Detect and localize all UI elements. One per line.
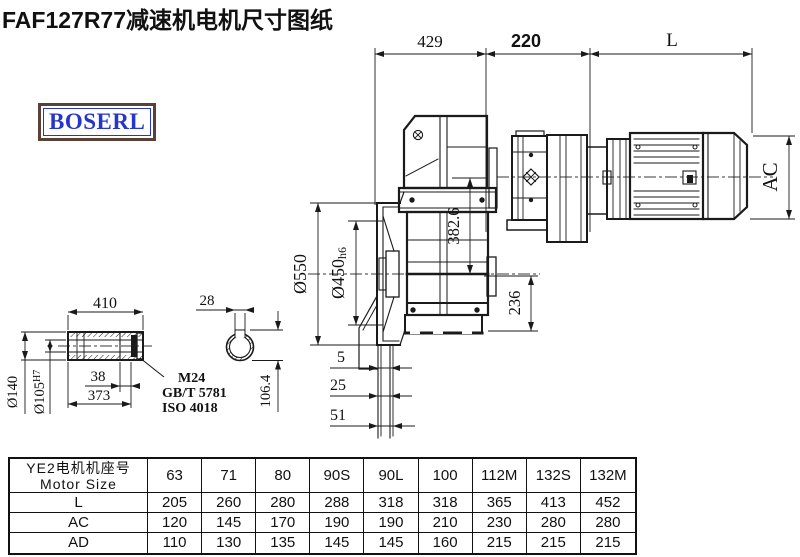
thread-std2-label: ISO 4018 xyxy=(162,401,218,416)
table-col-header: 80 xyxy=(256,459,310,493)
dim-105-value: Ø105 xyxy=(32,382,48,414)
table-col-header: 63 xyxy=(148,459,202,493)
dim-51-label: 51 xyxy=(330,407,346,424)
table-col-header: 112M xyxy=(473,459,527,493)
table-cell: 145 xyxy=(202,513,256,533)
dim-105-label: Ø105H7 xyxy=(32,370,48,414)
boserl-logo: BOSERL xyxy=(38,103,156,141)
dim-410-label: 410 xyxy=(93,295,117,312)
dim-140-label: Ø140 xyxy=(5,376,21,408)
motor xyxy=(630,133,747,219)
thread-spec-label: M24 xyxy=(178,371,205,386)
table-cell: 145 xyxy=(310,533,364,553)
dim-38-label: 38 xyxy=(91,369,106,385)
table-cell: 413 xyxy=(527,493,581,513)
table-row-label: AD xyxy=(10,533,148,553)
dim-220-label: 220 xyxy=(511,31,541,51)
table-cell: 205 xyxy=(148,493,202,513)
table-col-header: 132S xyxy=(527,459,581,493)
table-cell: 215 xyxy=(581,533,635,553)
table-col-header: 90L xyxy=(364,459,418,493)
dim-105-tolerance: H7 xyxy=(32,370,43,382)
table-cell: 260 xyxy=(202,493,256,513)
table-cell: 280 xyxy=(581,513,635,533)
dim-429-label: 429 xyxy=(417,32,443,51)
dim-28-label: 28 xyxy=(200,293,215,309)
table-cell: 230 xyxy=(473,513,527,533)
output-flange-profile xyxy=(359,192,404,438)
dimension-labels: 429 220 L AC 382.6 236 Ø550 Ø450h6 5 25 … xyxy=(5,30,782,424)
table-cell: 318 xyxy=(364,493,418,513)
table-cell: 365 xyxy=(473,493,527,513)
table-cell: 452 xyxy=(581,493,635,513)
table-col-header: 71 xyxy=(202,459,256,493)
page: { "title": "FAF127R77减速机电机尺寸图纸", "logo":… xyxy=(0,0,800,557)
dim-382-label: 382.6 xyxy=(444,207,463,244)
centerlines xyxy=(58,177,773,346)
table-cell: 280 xyxy=(256,493,310,513)
dim-373-label: 373 xyxy=(88,388,111,404)
r77-input-unit xyxy=(489,131,630,242)
dim-450-label: Ø450h6 xyxy=(328,247,349,299)
thread-std1-label: GB/T 5781 xyxy=(162,386,227,401)
table-row-label: L xyxy=(10,493,148,513)
table-cell: 318 xyxy=(419,493,473,513)
dim-450-tolerance: h6 xyxy=(335,247,349,259)
dim-550-label: Ø550 xyxy=(290,254,310,294)
table-cell: 190 xyxy=(364,513,418,533)
table-cell: 135 xyxy=(256,533,310,553)
table-cell: 215 xyxy=(473,533,527,553)
table-cell: 110 xyxy=(148,533,202,553)
dim-25-label: 25 xyxy=(330,377,346,394)
page-title: FAF127R77减速机电机尺寸图纸 xyxy=(2,1,333,35)
table-cell: 160 xyxy=(419,533,473,553)
dim-AC-label: AC xyxy=(758,162,782,191)
table-header-cell: YE2电机机座号 Motor Size xyxy=(10,459,148,493)
motor-size-table: YE2电机机座号 Motor Size 63 71 80 90S 90L 100… xyxy=(8,457,637,555)
table-cell: 288 xyxy=(310,493,364,513)
table-row-label: AC xyxy=(10,513,148,533)
table-cell: 120 xyxy=(148,513,202,533)
table-cell: 145 xyxy=(364,533,418,553)
dim-L-label: L xyxy=(666,30,678,51)
dim-450-value: Ø450 xyxy=(328,259,348,299)
shaft-cross-section xyxy=(227,330,254,361)
dim-236-label: 236 xyxy=(505,291,524,316)
table-cell: 170 xyxy=(256,513,310,533)
table-cell: 210 xyxy=(419,513,473,533)
table-cell: 130 xyxy=(202,533,256,553)
table-cell: 190 xyxy=(310,513,364,533)
table-cell: 280 xyxy=(527,513,581,533)
table-header-cn: YE2电机机座号 xyxy=(26,460,130,476)
technical-drawing: 429 220 L AC 382.6 236 Ø550 Ø450h6 5 25 … xyxy=(0,0,800,457)
table-cell: 215 xyxy=(527,533,581,553)
logo-text: BOSERL xyxy=(43,108,151,136)
dim-5-label: 5 xyxy=(337,349,345,366)
table-col-header: 90S xyxy=(310,459,364,493)
table-header-en: Motor Size xyxy=(40,476,117,492)
table-col-header: 132M xyxy=(581,459,635,493)
dim-106-label: 106.4 xyxy=(258,374,274,407)
table-col-header: 100 xyxy=(419,459,473,493)
